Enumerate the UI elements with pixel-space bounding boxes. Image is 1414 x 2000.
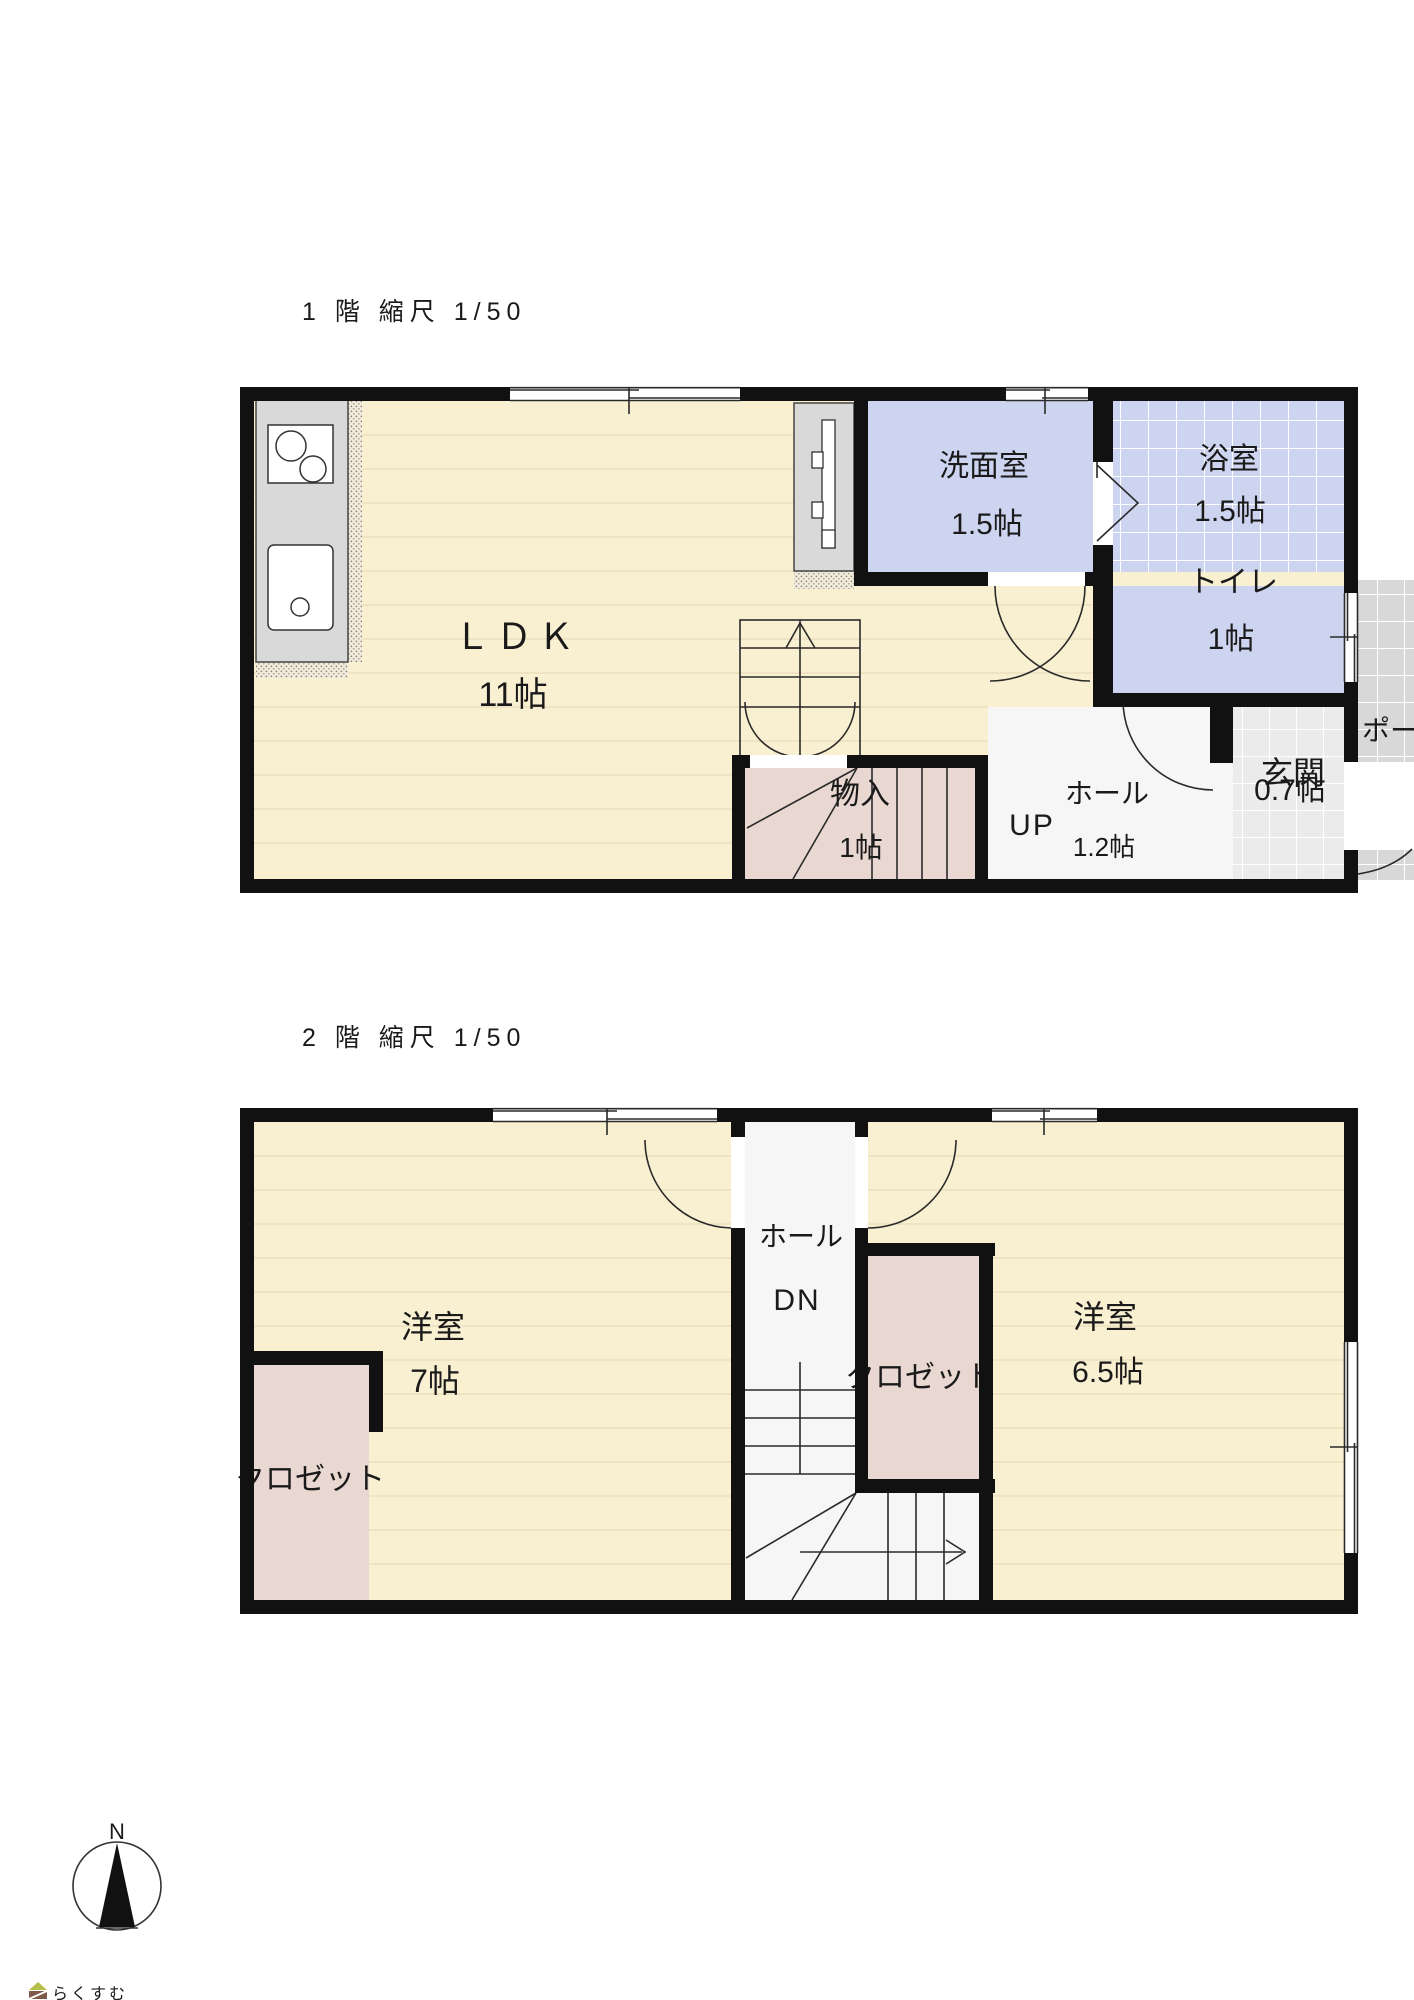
entry-door-opening: [1344, 762, 1358, 850]
toilet-label: トイレ: [1188, 566, 1278, 599]
bath-size: 1.5帖: [1194, 495, 1266, 528]
stairs-down-label: DN: [773, 1284, 820, 1317]
west-room-size: 7帖: [410, 1363, 460, 1399]
hall1-label: ホール: [1065, 778, 1149, 809]
logo-text: らくすむ: [52, 1985, 128, 2000]
porch-label: ポーチ: [1362, 715, 1414, 746]
bath-label: 浴室: [1199, 443, 1259, 476]
floor-plan-page: ＬＤＫ 11帖 洗面室 1.5帖 浴室 1.5帖 トイレ 1帖 玄関 0.7帖 …: [0, 0, 1414, 2000]
genkan-size: 0.7帖: [1254, 774, 1326, 807]
floor2-plan: 洋室 7帖 ホール DN クロゼット クロゼット 洋室 6.5帖: [235, 1108, 1358, 1614]
floor1-plan: ＬＤＫ 11帖 洗面室 1.5帖 浴室 1.5帖 トイレ 1帖 玄関 0.7帖 …: [240, 387, 1414, 893]
washroom-door-opening: [988, 572, 1085, 586]
east-room-label: 洋室: [1073, 1299, 1137, 1335]
washroom-label: 洗面室: [939, 450, 1029, 483]
counter-hatch-right: [348, 400, 362, 662]
stair-run-floor: [855, 1493, 979, 1600]
floor-plan-drawing: ＬＤＫ 11帖 洗面室 1.5帖 浴室 1.5帖 トイレ 1帖 玄関 0.7帖 …: [0, 0, 1414, 2000]
toilet-size: 1帖: [1208, 623, 1255, 656]
storage-stairs-opening: [750, 755, 847, 768]
floor2-title: 2 階 縮尺 1/50: [302, 1024, 526, 1052]
logo-house-icon: [29, 1982, 47, 1990]
ldk-label: ＬＤＫ: [454, 616, 580, 657]
west-room-door-opening: [731, 1137, 745, 1228]
east-room-size: 6.5帖: [1072, 1356, 1144, 1389]
stairs-up-label: UP: [1009, 809, 1055, 842]
storage-label: 物入: [830, 778, 890, 811]
compass: N: [73, 1819, 161, 1930]
storage-size: 1帖: [839, 832, 883, 863]
brand-logo: らくすむ: [29, 1982, 128, 2000]
compass-north-label: N: [109, 1819, 125, 1844]
hall2-label: ホール: [759, 1221, 843, 1252]
east-room-door-opening: [855, 1137, 868, 1228]
kitchen-counter: [256, 400, 362, 678]
west-room-label: 洋室: [401, 1309, 465, 1345]
hall1-size: 1.2帖: [1073, 832, 1135, 862]
cabinet-hatch: [794, 571, 854, 589]
floor1-title: 1 階 縮尺 1/50: [302, 298, 526, 326]
compass-needle-icon: [99, 1843, 135, 1927]
closet-west-label: クロゼット: [235, 1463, 385, 1496]
ldk-size: 11帖: [478, 676, 547, 714]
room-washroom-floor: [868, 401, 1093, 572]
kitchen-sink: [268, 545, 333, 630]
room-hall2-floor: [745, 1122, 855, 1600]
room-bath-floor: [1113, 401, 1344, 572]
tall-cabinet: [794, 403, 854, 589]
counter-hatch-bottom: [256, 662, 348, 678]
washroom-size: 1.5帖: [951, 508, 1023, 541]
